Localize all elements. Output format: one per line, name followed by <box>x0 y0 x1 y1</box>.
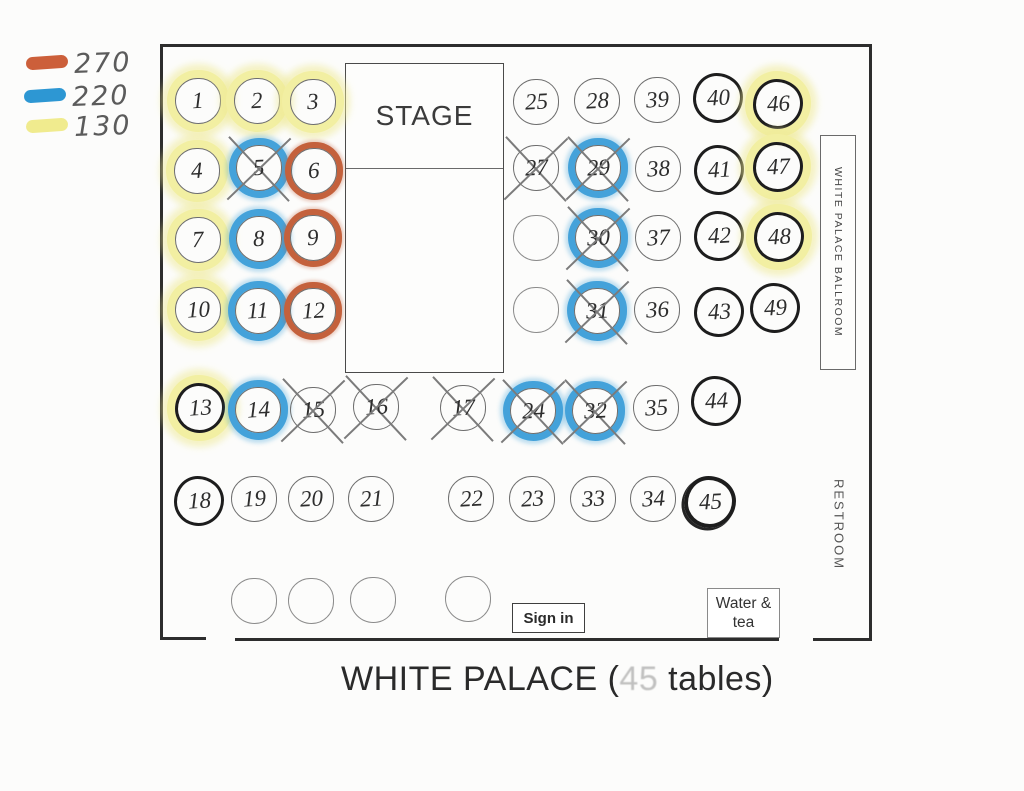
restroom-text: RESTROOM <box>832 479 847 570</box>
table-number: 24 <box>521 397 545 424</box>
wall-bottom-left-stub <box>160 637 206 640</box>
table-31: 31 <box>574 288 620 334</box>
wall-bottom <box>235 638 779 641</box>
table-number: 19 <box>242 485 266 512</box>
sign-in-label: Sign in <box>524 610 574 627</box>
table-number: 16 <box>364 393 388 420</box>
table-1: 1 <box>175 78 221 124</box>
table-29: 29 <box>575 145 621 191</box>
table-number: 21 <box>359 485 383 512</box>
table-number: 36 <box>645 296 669 323</box>
table-number: 12 <box>301 297 325 324</box>
table-number: 11 <box>247 297 270 324</box>
table-number: 34 <box>641 485 665 512</box>
page-title: WHITE PALACE (45 tables) <box>341 660 774 699</box>
scanned-seating-chart: 270 220 130 STAGE 1234567891011121314151… <box>0 0 1024 791</box>
wall-top <box>160 44 872 47</box>
table-number: 41 <box>707 156 731 183</box>
table-number: 27 <box>524 154 548 181</box>
table-number: 31 <box>585 297 609 324</box>
table-12: 12 <box>290 288 336 334</box>
table-49: 49 <box>750 283 800 333</box>
table-9: 9 <box>290 215 336 261</box>
table-number: 33 <box>581 485 605 512</box>
water-tea-station: Water & tea <box>707 588 780 638</box>
stage-label: STAGE <box>346 64 503 168</box>
table-30: 30 <box>575 215 621 261</box>
table-20: 20 <box>288 476 334 522</box>
table-number: 47 <box>766 153 790 180</box>
wall-sign-label: WHITE PALACE BALLROOM <box>832 167 844 337</box>
table-17: 17 <box>440 385 486 431</box>
title-suffix: tables) <box>658 660 774 698</box>
table-number: 43 <box>707 298 731 325</box>
table-number: 18 <box>187 487 211 514</box>
table-10: 10 <box>175 287 221 333</box>
wall-right <box>869 44 872 640</box>
table-4: 4 <box>174 148 220 194</box>
table-number: 1 <box>192 88 205 115</box>
orange-marker-swatch-icon <box>26 55 69 71</box>
table-11: 11 <box>235 288 281 334</box>
legend-value: 130 <box>73 110 132 143</box>
table-18: 18 <box>174 476 224 526</box>
table-number: 45 <box>698 488 722 515</box>
table-23: 23 <box>509 476 555 522</box>
table-number: 6 <box>308 158 321 185</box>
table-number: 38 <box>646 155 670 182</box>
table-number: 15 <box>301 396 325 423</box>
table-35: 35 <box>633 385 679 431</box>
table-34: 34 <box>630 476 676 522</box>
table-41: 41 <box>694 145 744 195</box>
table-43: 43 <box>694 287 744 337</box>
table-number: 42 <box>707 222 731 249</box>
table-number: 49 <box>763 294 787 321</box>
table-21: 21 <box>348 476 394 522</box>
table-8: 8 <box>236 216 282 262</box>
table-19: 19 <box>231 476 277 522</box>
table-36: 36 <box>634 287 680 333</box>
empty-circle <box>350 577 396 623</box>
table-number: 13 <box>188 394 212 421</box>
table-number: 2 <box>251 88 264 115</box>
table-number: 48 <box>767 223 791 250</box>
empty-circle <box>513 287 559 333</box>
table-number: 9 <box>307 225 320 252</box>
table-28: 28 <box>574 78 620 124</box>
table-number: 10 <box>186 296 210 323</box>
table-number: 46 <box>766 90 790 117</box>
stage-area: STAGE <box>345 63 504 373</box>
table-32: 32 <box>572 388 618 434</box>
table-37: 37 <box>635 215 681 261</box>
table-number: 37 <box>646 224 670 251</box>
restroom-label: RESTROOM <box>824 455 854 595</box>
table-number: 28 <box>585 87 609 114</box>
legend-value: 270 <box>73 47 132 80</box>
table-44: 44 <box>691 376 741 426</box>
table-number: 39 <box>645 86 669 113</box>
table-15: 15 <box>290 387 336 433</box>
table-13: 13 <box>175 383 225 433</box>
table-number: 17 <box>451 394 475 421</box>
table-39: 39 <box>634 77 680 123</box>
table-38: 38 <box>635 146 681 192</box>
table-25: 25 <box>513 79 559 125</box>
table-47: 47 <box>753 142 803 192</box>
table-number: 30 <box>586 224 610 251</box>
table-number: 4 <box>191 158 204 185</box>
table-27: 27 <box>513 145 559 191</box>
water-tea-label: Water & tea <box>708 594 779 633</box>
table-6: 6 <box>291 148 337 194</box>
stage-edge-line <box>346 168 503 169</box>
table-number: 25 <box>524 88 548 115</box>
yellow-marker-swatch-icon <box>26 118 69 134</box>
blue-marker-swatch-icon <box>24 88 67 104</box>
table-2: 2 <box>234 78 280 124</box>
table-16: 16 <box>353 384 399 430</box>
table-number: 29 <box>586 154 610 181</box>
table-number: 20 <box>299 485 323 512</box>
table-24: 24 <box>510 388 556 434</box>
table-5: 5 <box>236 145 282 191</box>
table-number: 8 <box>253 226 266 253</box>
wall-bottom-right-stub <box>813 638 872 641</box>
empty-circle <box>231 578 277 624</box>
table-42: 42 <box>694 211 744 261</box>
wall-left <box>160 44 163 639</box>
empty-circle <box>288 578 334 624</box>
title-obscured-number: 45 <box>619 660 658 698</box>
legend-value: 220 <box>71 80 130 113</box>
table-40: 40 <box>693 73 743 123</box>
table-number: 5 <box>253 155 266 182</box>
table-7: 7 <box>175 217 221 263</box>
table-3: 3 <box>290 79 336 125</box>
empty-circle <box>445 576 491 622</box>
table-number: 44 <box>704 387 728 414</box>
table-number: 35 <box>644 394 668 421</box>
table-number: 22 <box>459 485 483 512</box>
table-number: 14 <box>246 396 270 423</box>
sign-in-station: Sign in <box>512 603 585 633</box>
table-number: 32 <box>583 397 607 424</box>
title-prefix: WHITE PALACE ( <box>341 660 619 698</box>
table-number: 40 <box>706 84 730 111</box>
table-45: 45 <box>684 476 736 528</box>
table-number: 3 <box>307 89 320 116</box>
table-14: 14 <box>235 387 281 433</box>
table-22: 22 <box>448 476 494 522</box>
wall-sign: WHITE PALACE BALLROOM <box>820 135 856 370</box>
table-48: 48 <box>754 212 804 262</box>
table-number: 23 <box>520 485 544 512</box>
table-46: 46 <box>753 79 803 129</box>
table-33: 33 <box>570 476 616 522</box>
table-number: 7 <box>192 227 205 254</box>
empty-circle <box>513 215 559 261</box>
